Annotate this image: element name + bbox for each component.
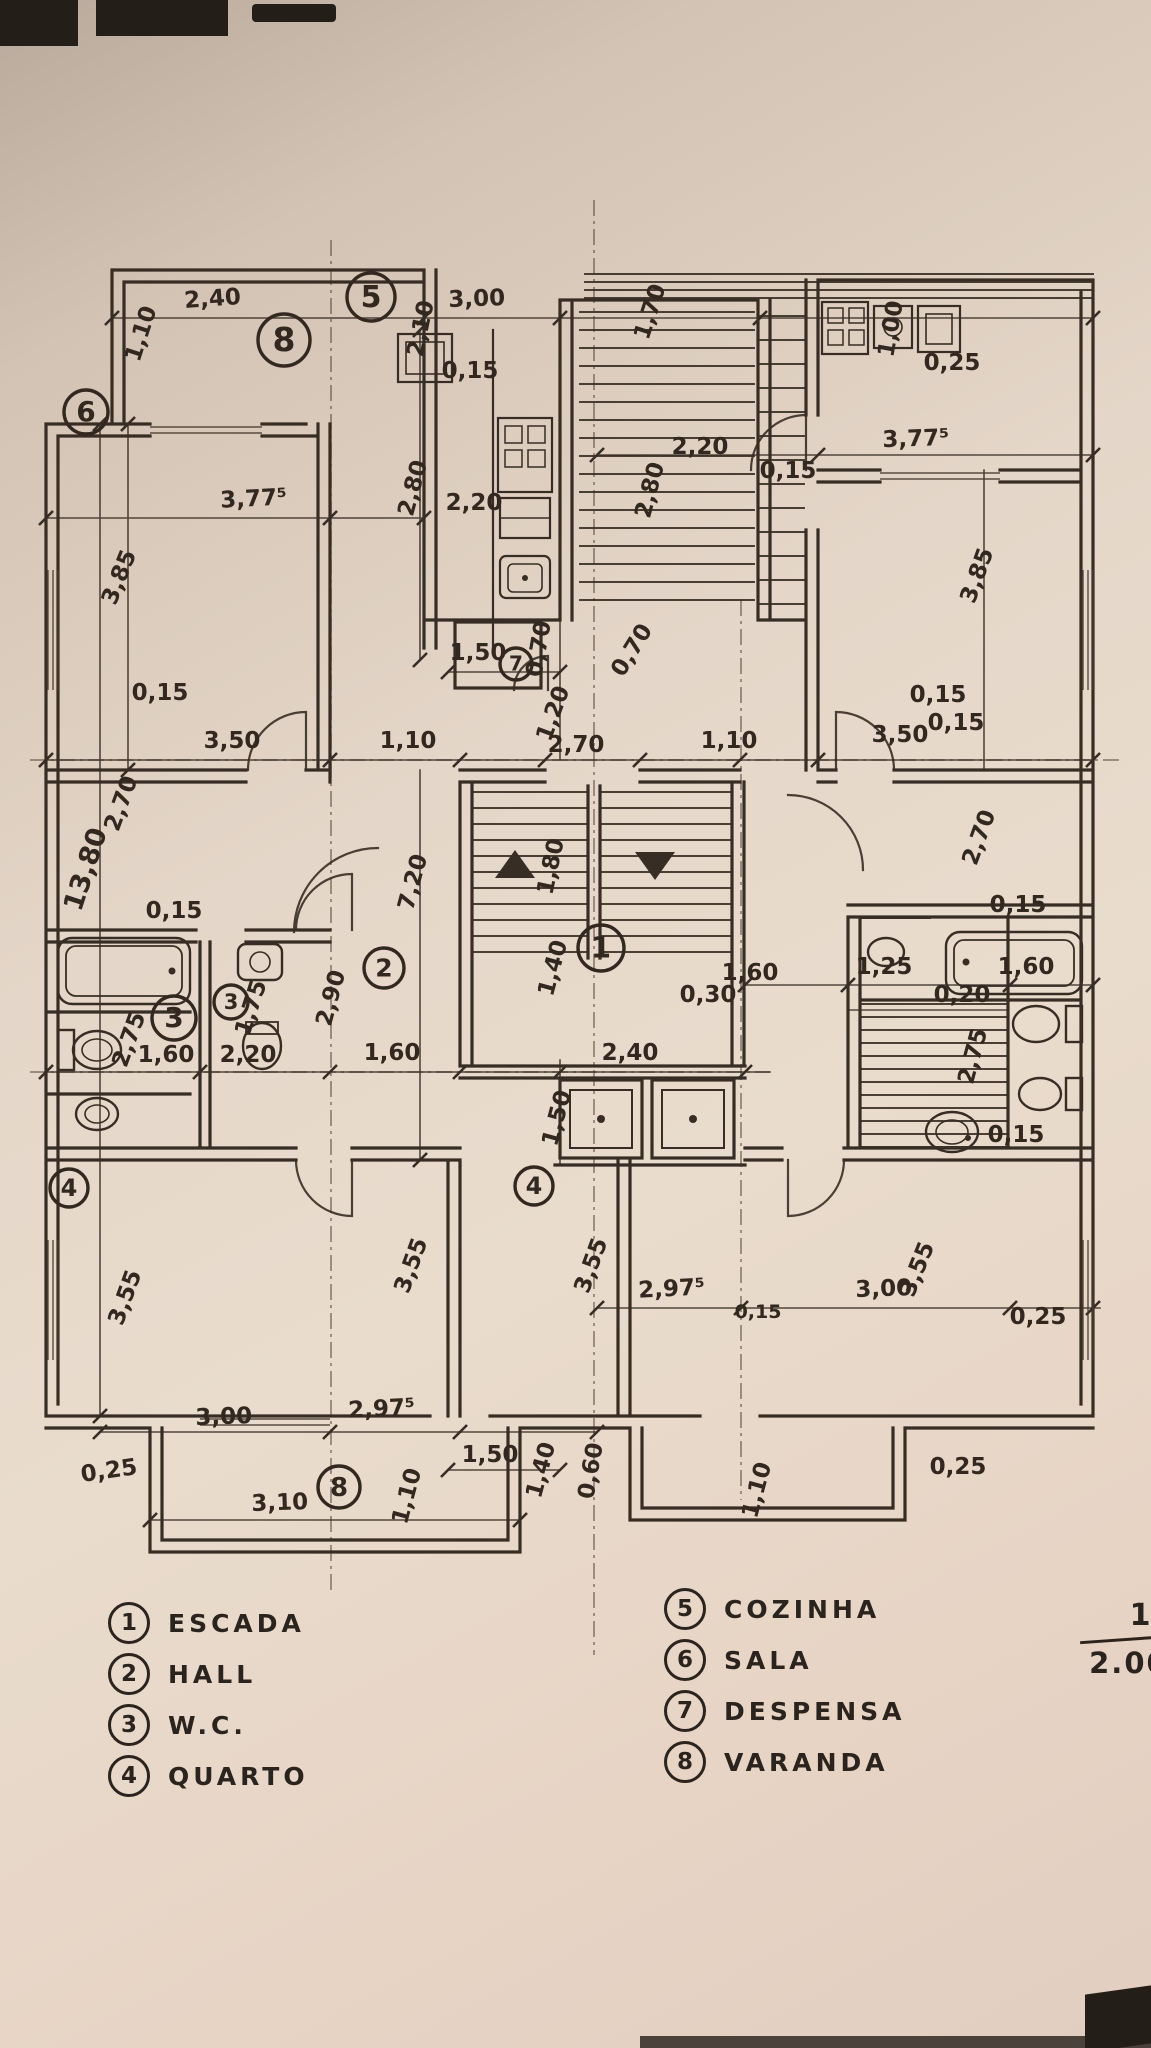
room-marker: 3 xyxy=(152,996,196,1040)
legend-item-number: 5 xyxy=(664,1588,706,1630)
photo-edge-artifact xyxy=(96,0,228,36)
legend-item: 3W.C. xyxy=(108,1704,309,1746)
sink-right-low xyxy=(926,1112,978,1152)
dimension-label: 0,25 xyxy=(1010,1304,1067,1330)
dimension-label: 3,50 xyxy=(204,728,261,754)
dimension-label: 3,55 xyxy=(390,1234,434,1296)
legend-item: 2HALL xyxy=(108,1653,309,1695)
scale-fraction-line xyxy=(1080,1633,1151,1644)
scale-denominator: 2.000 xyxy=(1080,1646,1151,1680)
svg-text:4: 4 xyxy=(61,1174,78,1202)
dimension-label: 3,85 xyxy=(956,544,1000,606)
dimension-label: 2,40 xyxy=(602,1040,659,1066)
dimension-label: 1,60 xyxy=(138,1042,195,1068)
axis-lines xyxy=(30,200,1120,1655)
toilet-right2 xyxy=(1019,1078,1061,1110)
dimension-label: 0,15 xyxy=(132,680,189,706)
dimension-label: 2,80 xyxy=(630,459,670,521)
dimension-label: 13,80 xyxy=(58,824,114,915)
dimension-label: 2,20 xyxy=(672,434,729,460)
legend-item: 4QUARTO xyxy=(108,1755,309,1797)
dimension-label: 1,00 xyxy=(873,299,908,359)
dimension-label: 3,50 xyxy=(872,722,929,748)
legend-item-number: 2 xyxy=(108,1653,150,1695)
dimension-label: 1,10 xyxy=(120,303,162,365)
dimension-label: 1,10 xyxy=(380,728,437,754)
legend-item-label: DESPENSA xyxy=(724,1697,906,1726)
svg-text:6: 6 xyxy=(76,395,95,428)
dimension-label: 2,90 xyxy=(311,967,351,1029)
dimension-label: 0,30 xyxy=(680,982,737,1008)
floor-plan-photo: 1,102,403,002,100,151,701,000,253,77⁵0,1… xyxy=(0,0,1151,2048)
dimension-label: 1,40 xyxy=(533,937,573,999)
dimension-label: 3,77⁵ xyxy=(220,484,288,513)
stove-left xyxy=(498,418,552,492)
svg-text:1: 1 xyxy=(591,931,611,965)
dimension-label: 1,10 xyxy=(737,1459,777,1521)
dimension-label: 2,97⁵ xyxy=(638,1274,706,1303)
dimension-label: 0,15 xyxy=(990,892,1047,918)
svg-text:4: 4 xyxy=(526,1172,543,1200)
legend-item-label: QUARTO xyxy=(168,1762,309,1791)
legend-item-label: HALL xyxy=(168,1660,256,1689)
dimension-label: 2,40 xyxy=(183,284,241,314)
dimension-label: 1,10 xyxy=(701,728,758,754)
dimension-label: 0,15 xyxy=(442,358,499,384)
dimension-label: 3,00 xyxy=(448,285,506,313)
scale-numerator: 1 xyxy=(1080,1598,1151,1633)
stair-up-arrow xyxy=(495,850,535,878)
dimension-label: 2,70 xyxy=(548,732,605,758)
dimension-label: 1,25 xyxy=(856,954,913,980)
legend-item-label: W.C. xyxy=(168,1711,247,1740)
dimension-label: 2,20 xyxy=(220,1042,277,1068)
photo-edge-artifact xyxy=(640,2036,1151,2048)
dimension-label: 1,60 xyxy=(998,954,1055,980)
dimension-label: 0,15 xyxy=(988,1122,1045,1148)
dimension-label: 0,20 xyxy=(934,982,991,1008)
dimension-label: 3,00 xyxy=(855,1275,913,1303)
legend-item-label: VARANDA xyxy=(724,1748,889,1777)
legend-item: 1ESCADA xyxy=(108,1602,309,1644)
elevator-shafts xyxy=(560,1080,734,1158)
bidet-left xyxy=(76,1098,118,1130)
dimension-label: 0,15 xyxy=(928,710,985,736)
dimension-label: 1,50 xyxy=(450,640,507,666)
dimension-label: 3,77⁵ xyxy=(882,425,950,453)
legend-item-number: 7 xyxy=(664,1690,706,1732)
dimension-label: 2,10 xyxy=(403,298,440,359)
room-marker: 1 xyxy=(578,925,624,971)
dimension-label: 1,50 xyxy=(462,1442,519,1468)
svg-text:5: 5 xyxy=(361,280,382,315)
legend-item-label: COZINHA xyxy=(724,1595,880,1624)
dimension-label: 0,70 xyxy=(606,619,658,681)
svg-text:8: 8 xyxy=(273,320,296,359)
legend-item: 7DESPENSA xyxy=(664,1690,906,1732)
svg-text:8: 8 xyxy=(330,1473,348,1503)
dimension-label: 0,70 xyxy=(521,619,556,679)
dimension-label: 1,60 xyxy=(364,1040,421,1066)
legend-item-number: 4 xyxy=(108,1755,150,1797)
svg-text:3: 3 xyxy=(164,1001,183,1034)
room-marker: 6 xyxy=(64,390,108,434)
dimension-label: 2,70 xyxy=(958,806,1002,868)
legend-left-column: 1ESCADA2HALL3W.C.4QUARTO xyxy=(108,1602,309,1797)
legend-item-number: 1 xyxy=(108,1602,150,1644)
dimension-label: 3,10 xyxy=(251,1489,309,1517)
stair-down-arrow xyxy=(635,852,675,880)
dimension-label: 1,10 xyxy=(387,1465,427,1527)
dimension-label: 2,20 xyxy=(446,490,503,516)
room-marker: 4 xyxy=(515,1167,553,1205)
dimension-label: 0,25 xyxy=(79,1454,139,1488)
room-marker: 4 xyxy=(50,1169,88,1207)
dimension-label: 1,50 xyxy=(537,1087,577,1149)
dimension-label: 0,15 xyxy=(910,682,967,708)
svg-text:7: 7 xyxy=(509,652,523,676)
dimension-label: 0,60 xyxy=(573,1441,608,1501)
scale-fraction: 1 2.000 xyxy=(1080,1598,1151,1680)
toilet-left-tank xyxy=(58,1030,74,1070)
legend-item: 5COZINHA xyxy=(664,1588,906,1630)
legend-right-column: 5COZINHA6SALA7DESPENSA8VARANDA xyxy=(664,1588,906,1783)
legend-item: 6SALA xyxy=(664,1639,906,1681)
dimension-label: 0,15 xyxy=(146,898,203,924)
dimension-label: 0,15 xyxy=(760,458,817,484)
room-marker: 8 xyxy=(258,314,310,366)
svg-text:2: 2 xyxy=(375,953,392,982)
legend-item-label: ESCADA xyxy=(168,1609,305,1638)
legend-item-label: SALA xyxy=(724,1646,813,1675)
room-marker: 2 xyxy=(364,948,404,988)
toilet-right1 xyxy=(1013,1006,1059,1042)
dimension-label: 0,15 xyxy=(735,1301,782,1323)
room-marker: 8 xyxy=(318,1466,360,1508)
dimension-label: 3,55 xyxy=(104,1266,148,1328)
sink-left-wc2 xyxy=(238,944,282,980)
legend-item: 8VARANDA xyxy=(664,1741,906,1783)
dimension-label: 7,20 xyxy=(393,851,433,913)
dimension-label: 3,00 xyxy=(195,1403,253,1431)
legend-item-number: 6 xyxy=(664,1639,706,1681)
legend-item-number: 3 xyxy=(108,1704,150,1746)
dimension-label: 0,25 xyxy=(924,350,981,376)
stove-right xyxy=(822,302,868,354)
dimension-label: 0,25 xyxy=(930,1454,987,1480)
svg-text:3: 3 xyxy=(224,990,239,1014)
dimension-label: 3,85 xyxy=(97,546,142,608)
legend-item-number: 8 xyxy=(664,1741,706,1783)
dimension-label: 3,55 xyxy=(570,1234,614,1296)
photo-edge-artifact xyxy=(252,4,336,22)
dimension-label: 2,80 xyxy=(393,457,433,519)
photo-edge-artifact xyxy=(0,0,78,46)
dimension-label: 2,97⁵ xyxy=(348,1394,416,1423)
room-marker: 5 xyxy=(347,273,395,321)
photo-edge-artifact xyxy=(1085,1985,1151,2048)
walls xyxy=(46,270,1093,1552)
